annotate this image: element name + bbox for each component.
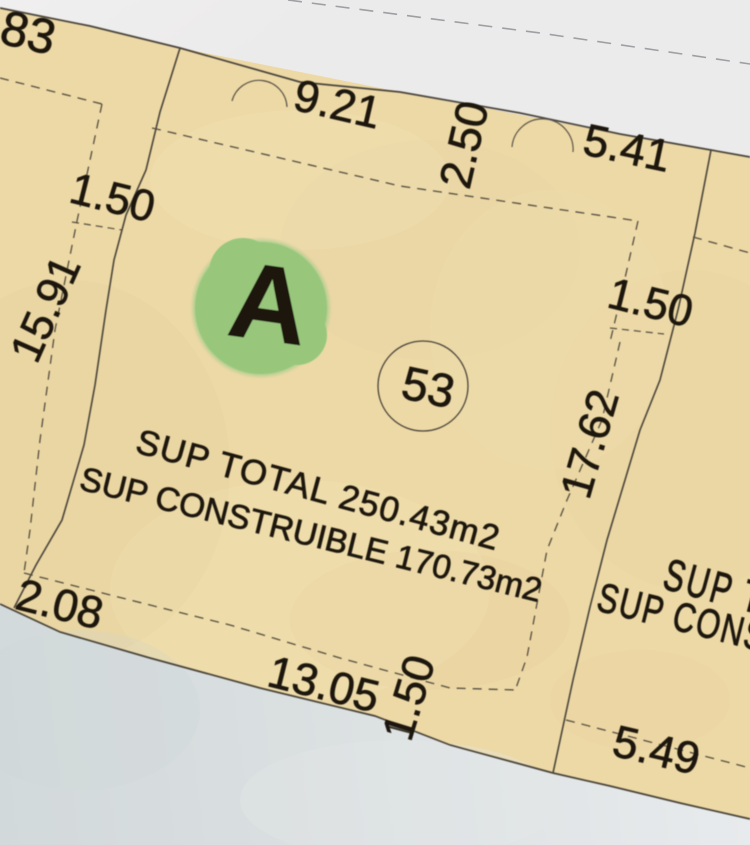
svg-text:53: 53 [397,356,459,419]
svg-text:A: A [222,238,316,369]
